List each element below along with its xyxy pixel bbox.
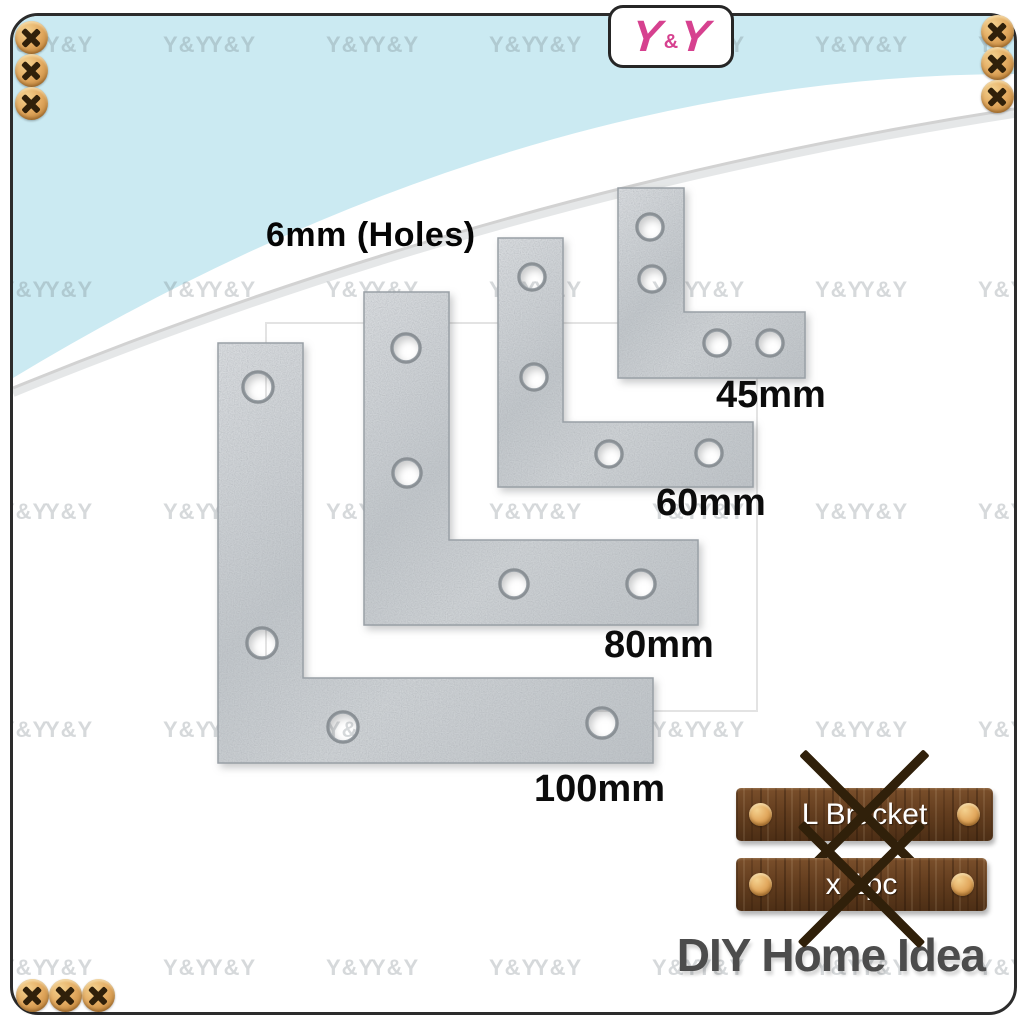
screw-icon xyxy=(15,21,48,54)
screw-icon xyxy=(981,80,1014,113)
bracket-size-label: 60mm xyxy=(656,484,766,522)
screw-icon xyxy=(957,803,980,826)
brand-logo-letter: Y xyxy=(678,15,712,59)
screw-icon xyxy=(981,47,1014,80)
brand-logo-ampersand: & xyxy=(664,22,678,52)
bracket-size-label: 100mm xyxy=(534,770,665,808)
product-image: Y&YY&YY&YY&YY&YY&YY&YY&YY&YY&YY&YY&YY&YY… xyxy=(0,0,1024,1024)
footer-brand-text: DIY Home Idea xyxy=(677,928,985,982)
holes-note: 6mm (Holes) xyxy=(266,216,476,255)
bracket-size-label: 45mm xyxy=(716,376,826,414)
screw-icon xyxy=(981,15,1014,48)
screw-icon xyxy=(15,54,48,87)
screw-icon xyxy=(15,87,48,120)
screw-icon xyxy=(82,979,115,1012)
bracket-size-label: 80mm xyxy=(604,626,714,664)
screw-icon xyxy=(749,803,772,826)
screw-icon xyxy=(16,979,49,1012)
brand-logo: Y & Y xyxy=(608,5,734,68)
screw-icon xyxy=(749,873,772,896)
name-plate: L Bracket xyxy=(736,788,993,841)
screw-icon xyxy=(49,979,82,1012)
quantity-plate: x 1pc xyxy=(736,858,987,911)
brand-logo-letter: Y xyxy=(630,15,664,59)
l-bracket-45mm xyxy=(618,188,805,378)
screw-icon xyxy=(951,873,974,896)
